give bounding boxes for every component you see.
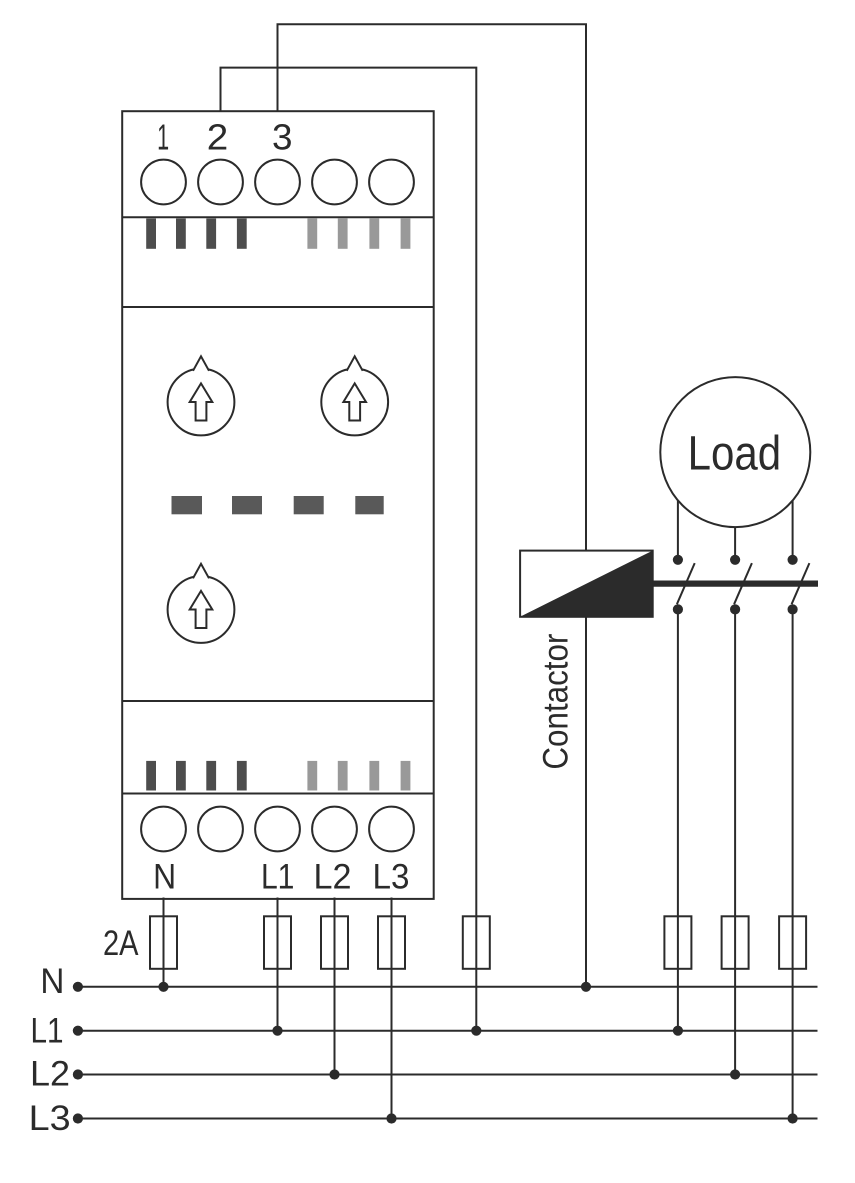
svg-text:Contactor: Contactor bbox=[537, 633, 576, 769]
svg-text:L1: L1 bbox=[261, 857, 295, 896]
svg-text:L2: L2 bbox=[30, 1055, 70, 1094]
svg-text:L3: L3 bbox=[29, 1099, 71, 1138]
svg-text:1: 1 bbox=[157, 116, 169, 157]
svg-text:3: 3 bbox=[272, 116, 293, 157]
svg-text:L2: L2 bbox=[314, 857, 352, 896]
svg-text:L3: L3 bbox=[373, 857, 410, 896]
svg-text:N: N bbox=[40, 962, 64, 1001]
svg-text:L1: L1 bbox=[31, 1012, 64, 1051]
svg-text:N: N bbox=[153, 857, 176, 896]
svg-text:2A: 2A bbox=[103, 924, 139, 963]
svg-text:2: 2 bbox=[207, 116, 229, 157]
svg-text:Load: Load bbox=[688, 428, 782, 481]
